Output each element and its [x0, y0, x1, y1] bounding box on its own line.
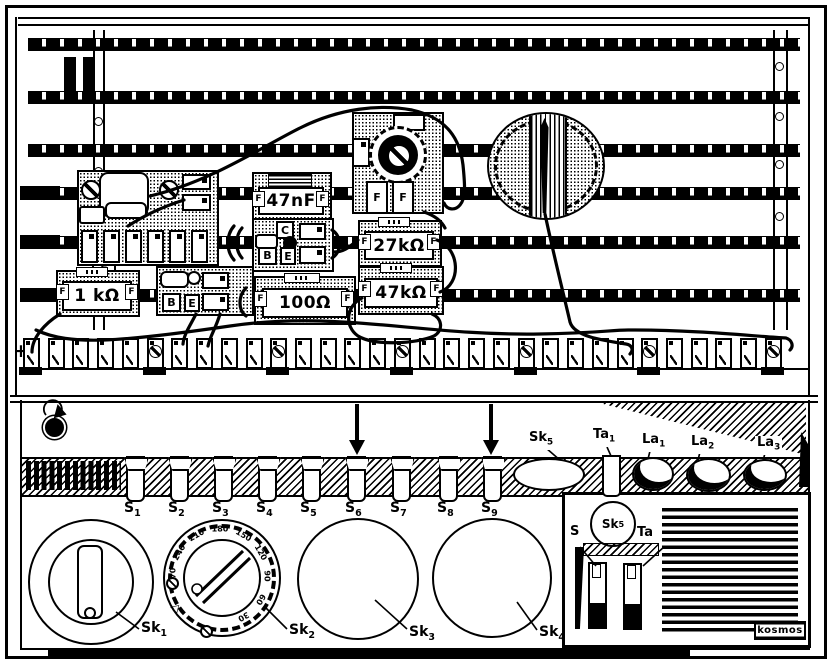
adjust-screw[interactable]	[45, 418, 64, 437]
label-sk1: Sk1	[141, 620, 167, 639]
dial-number: 180	[212, 525, 229, 534]
terminal-clip[interactable]	[542, 338, 559, 369]
resistor-47k-value: 47kΩ	[364, 278, 438, 308]
knob-sk1-handle[interactable]	[77, 545, 103, 619]
terminal-tab	[266, 367, 289, 375]
rail-hole	[775, 212, 784, 221]
terminal-clip[interactable]	[666, 338, 683, 369]
terminal-clip[interactable]	[97, 338, 114, 369]
transformer-clip[interactable]	[103, 230, 120, 263]
screw-icon	[81, 180, 101, 200]
inset-slider-s[interactable]	[588, 562, 607, 629]
terminal-clip[interactable]	[48, 338, 65, 369]
rail-hole	[94, 117, 103, 126]
dial-number: 90	[263, 570, 272, 581]
pot-knob-slot[interactable]	[388, 145, 410, 167]
terminal-tab	[143, 367, 166, 375]
inset-sk5-knob[interactable]: Sk5	[590, 501, 636, 547]
transformer-clip[interactable]	[147, 230, 164, 263]
dial-sk2-knob[interactable]	[183, 539, 261, 617]
inset-slider-ta[interactable]	[623, 563, 642, 630]
transformer-clip[interactable]	[125, 230, 142, 263]
terminal-clip[interactable]	[715, 338, 732, 369]
transformer-clip[interactable]	[182, 194, 211, 211]
terminal-clip[interactable]	[72, 338, 89, 369]
label-la2: La2	[689, 435, 716, 454]
knob-sk3[interactable]	[297, 518, 419, 640]
terminal-clip[interactable]	[221, 338, 238, 369]
electronics-kit-illustration: F F 47nF F F C B E 27kΩ F F 47kΩ F F 1 k…	[0, 0, 831, 663]
label-ta1: Ta1	[591, 428, 617, 447]
clip-f-label: F	[56, 284, 69, 300]
transformer-clip[interactable]	[169, 230, 186, 263]
brand-badge: kosmos	[754, 621, 806, 640]
board-bottom-edge	[10, 395, 818, 397]
coil[interactable]	[487, 112, 605, 220]
clip-f-label: F	[252, 191, 265, 207]
terminal-clip[interactable]	[567, 338, 584, 369]
terminal-clip[interactable]	[196, 338, 213, 369]
label-s8: S8	[437, 500, 454, 519]
slide-switch-s8[interactable]	[439, 456, 458, 502]
vent-slits	[26, 461, 121, 490]
terminal-clip[interactable]	[468, 338, 485, 369]
clip-f-label: F	[427, 234, 440, 250]
terminal-tab	[390, 367, 413, 375]
contact-block	[64, 57, 76, 91]
clip-f-label: F	[125, 284, 138, 300]
label-s4: S4	[256, 500, 273, 519]
capacitor-stripes	[268, 174, 312, 187]
slide-switch-s2[interactable]	[170, 456, 189, 502]
rail-hole	[775, 62, 784, 71]
knob-sk4[interactable]	[432, 518, 552, 638]
terminal-clip[interactable]	[246, 338, 263, 369]
clip-f-label: F	[430, 281, 443, 297]
resistor-27k-value: 27kΩ	[364, 231, 434, 260]
terminal-screw[interactable]	[765, 338, 782, 369]
transistor2-pin-e: E	[184, 294, 200, 312]
terminal-clip[interactable]	[122, 338, 139, 369]
resistor-100-value: 100Ω	[262, 288, 348, 318]
lamp-la2	[686, 458, 731, 492]
transformer-notch	[79, 206, 105, 224]
terminal-clip[interactable]	[443, 338, 460, 369]
label-s5: S5	[300, 500, 317, 519]
label-s1: S1	[124, 500, 141, 519]
label-s7: S7	[390, 500, 407, 519]
slide-switch-s6[interactable]	[347, 456, 366, 502]
clip-f-label: F	[341, 291, 354, 307]
bus-end-block	[20, 186, 60, 200]
resistor-band	[76, 267, 108, 277]
terminal-clip[interactable]	[295, 338, 312, 369]
clip-f-label: F	[358, 281, 371, 297]
terminal-clip[interactable]	[493, 338, 510, 369]
transistor2-notch	[160, 271, 189, 288]
terminal-clip[interactable]	[369, 338, 386, 369]
transistor2-clip[interactable]	[202, 272, 229, 289]
terminal-clip[interactable]	[23, 338, 40, 369]
screw-icon	[200, 625, 213, 638]
capacitor-value: 47nF	[258, 187, 324, 215]
terminal-clip[interactable]	[171, 338, 188, 369]
board-top-edge-inner	[18, 24, 810, 26]
bus-bar[interactable]	[28, 91, 800, 104]
label-sk2: Sk2	[289, 622, 315, 641]
rail-hole	[775, 112, 784, 121]
clip-f-label: F	[316, 191, 329, 207]
bus-end-block	[20, 235, 60, 249]
slide-switch-s5[interactable]	[302, 456, 321, 502]
slide-switch-s9[interactable]	[483, 456, 502, 502]
transistor1-pin-e: E	[280, 247, 296, 265]
terminal-clip[interactable]	[419, 338, 436, 369]
transistor1-notch	[255, 234, 278, 249]
terminal-tab	[514, 367, 537, 375]
label-s9: S9	[481, 500, 498, 519]
board-right-edge	[808, 17, 810, 395]
label-s2: S2	[168, 500, 185, 519]
board-left-edge	[15, 17, 17, 395]
lamp-la3	[743, 459, 787, 491]
pot-clip[interactable]	[352, 138, 370, 167]
console-base	[48, 649, 690, 657]
transformer-clip[interactable]	[81, 230, 98, 263]
pot-clip-f[interactable]: F	[366, 181, 388, 214]
sk5-opening[interactable]	[513, 458, 585, 491]
bus-bar[interactable]	[28, 38, 800, 51]
label-la3: La3	[755, 436, 782, 455]
slide-switch-s1[interactable]	[126, 456, 145, 502]
rail-hole	[775, 160, 784, 169]
inset-label-ta: Ta	[637, 525, 653, 540]
label-s3: S3	[212, 500, 229, 519]
transistor1-clip[interactable]	[299, 223, 326, 240]
terminal-clip[interactable]	[691, 338, 708, 369]
slide-switch-s4[interactable]	[258, 456, 277, 502]
label-s6: S6	[345, 500, 362, 519]
right-rail	[786, 30, 788, 330]
terminal-clip[interactable]	[740, 338, 757, 369]
clip-f-label: F	[254, 291, 267, 307]
terminal-tab	[761, 367, 784, 375]
clip-f-label: F	[358, 234, 371, 250]
transistor2-body	[187, 271, 201, 285]
inset-hatch-strip	[583, 543, 659, 556]
resistor-1k-value: 1 kΩ	[62, 281, 132, 311]
label-sk5: Sk5	[527, 431, 555, 450]
transformer-label-plate	[105, 202, 147, 219]
screw-icon	[159, 180, 179, 200]
terminal-screw[interactable]	[518, 338, 535, 369]
resistor-band	[378, 217, 410, 227]
terminal-clip[interactable]	[344, 338, 361, 369]
board-top-edge	[18, 17, 810, 19]
terminal-screw[interactable]	[147, 338, 164, 369]
transistor2-pin-b: B	[162, 293, 181, 312]
transistor2-clip[interactable]	[202, 293, 229, 311]
pot-clip-f[interactable]: F	[392, 181, 414, 214]
speaker-grille	[662, 508, 798, 634]
terminal-screw[interactable]	[394, 338, 411, 369]
terminal-clip[interactable]	[320, 338, 337, 369]
transformer-clip[interactable]	[182, 174, 211, 190]
transistor1-clip[interactable]	[299, 246, 326, 264]
terminal-screw[interactable]	[641, 338, 658, 369]
right-rail	[773, 30, 775, 330]
terminal-tab	[19, 367, 42, 375]
lamp-la1	[632, 457, 674, 491]
ta1-pushbutton[interactable]	[602, 455, 621, 497]
transformer-clip[interactable]	[191, 230, 208, 263]
inset-label-s: S	[570, 524, 579, 539]
screw-icon	[166, 577, 179, 590]
resistor-band	[380, 263, 412, 273]
terminal-clip[interactable]	[617, 338, 634, 369]
terminal-clip[interactable]	[592, 338, 609, 369]
slide-switch-s3[interactable]	[214, 456, 233, 502]
terminal-screw[interactable]	[270, 338, 287, 369]
terminal-tab	[637, 367, 660, 375]
label-sk3: Sk3	[409, 624, 435, 643]
label-la1: La1	[640, 433, 667, 452]
slide-switch-s7[interactable]	[392, 456, 411, 502]
resistor-band	[284, 273, 320, 283]
